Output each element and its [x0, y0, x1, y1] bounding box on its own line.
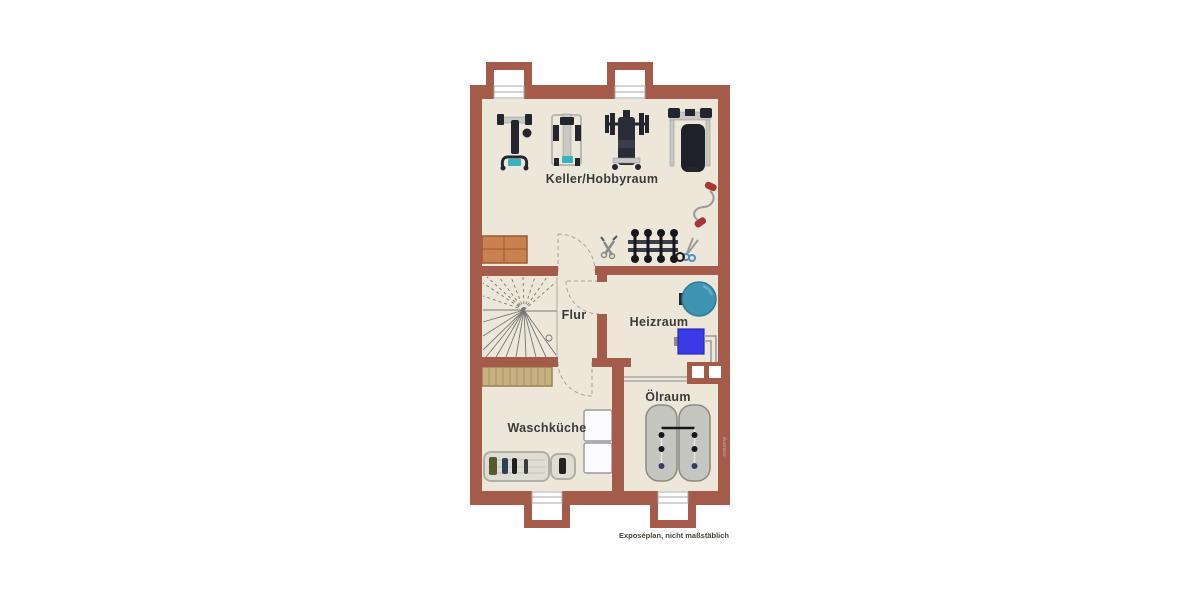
- room-label-keller: Keller/Hobbyraum: [546, 172, 658, 186]
- watermark-text: Illustration: [722, 437, 727, 458]
- washer-dryer-icon: [584, 410, 612, 473]
- plan-caption: Exposéplan, nicht maßstäblich: [619, 531, 729, 540]
- window-icon: [524, 491, 570, 528]
- floorplan-svg: Keller/Hobbyraum Flur Heizraum Ölraum Wa…: [0, 0, 1200, 600]
- room-label-waschkueche: Waschküche: [508, 421, 587, 435]
- window-icon: [650, 491, 696, 528]
- drying-rack-icon: [484, 452, 575, 481]
- wooden-cabinet-icon: [482, 367, 552, 386]
- window-icon: [607, 62, 653, 99]
- room-label-oelraum: Ölraum: [645, 389, 691, 404]
- window-icon: [486, 62, 532, 99]
- sideboard-icon: [482, 236, 527, 263]
- room-label-flur: Flur: [562, 308, 587, 322]
- chimney-icon: [687, 362, 730, 384]
- floorplan-page: Keller/Hobbyraum Flur Heizraum Ölraum Wa…: [0, 0, 1200, 600]
- room-label-heizraum: Heizraum: [630, 315, 689, 329]
